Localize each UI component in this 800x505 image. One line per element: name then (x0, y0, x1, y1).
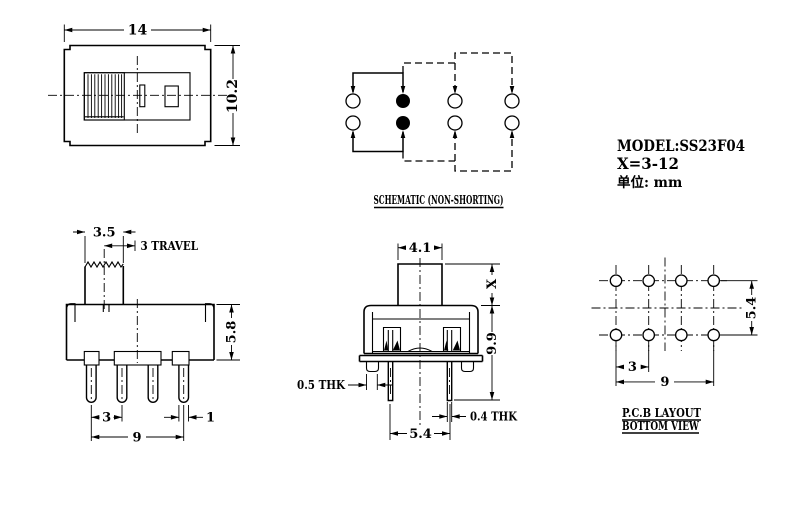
schematic-arrows (351, 86, 515, 138)
pcb-hole-1a (610, 275, 621, 286)
pin-tab-4 (172, 352, 189, 366)
dim-58-label: 5.8 (225, 321, 240, 344)
front-pin-centerlines (91, 368, 183, 400)
side-hook-left (367, 362, 379, 372)
pcb-hole-2a (643, 275, 654, 286)
x-range: X=3-12 (617, 154, 679, 173)
dim-05thk-arrows (359, 383, 386, 388)
dim-span-label: 9 (132, 430, 141, 445)
dim-05thk-label: 0.5 THK (297, 377, 346, 392)
pcb-hole-3a (676, 275, 687, 286)
contact-1b (346, 116, 360, 130)
pcb-hole-4a (708, 275, 719, 286)
schematic-label: SCHEMATIC (NON-SHORTING) (374, 193, 504, 207)
title-block: MODEL:SS23F04 X=3-12 单位: mm (617, 136, 745, 191)
schematic-solid-links (353, 73, 403, 152)
pcb-hole-1b (610, 329, 621, 340)
slot-window (165, 86, 178, 107)
front-view: 3.5 3 TRAVEL 5.8 3 1 (67, 226, 241, 446)
contact-2a-common (396, 94, 410, 108)
pcb-title-line2: BOTTOM VIEW (622, 418, 700, 433)
pcb-dim-54-label: 5.4 (745, 297, 760, 320)
dim-05thk-ext (348, 374, 392, 390)
pcb-hole-3b (676, 329, 687, 340)
mount-ear-left (67, 304, 76, 322)
technical-drawing-page: 14 10.2 SCHEMATIC (NON-SHORTING) MODEL:S… (0, 0, 800, 500)
dim-14-label: 14 (128, 23, 148, 39)
model-number: MODEL:SS23F04 (617, 136, 745, 155)
side-flange (360, 354, 483, 362)
dim-pinw-label: 1 (206, 411, 215, 426)
pin-tab-1 (84, 352, 99, 366)
top-view: 14 10.2 (48, 23, 241, 146)
contact-3a (448, 94, 462, 108)
pcb-hole-2b (643, 329, 654, 340)
switch-drawing-svg: 14 10.2 SCHEMATIC (NON-SHORTING) MODEL:S… (0, 0, 800, 500)
knob-stem-tab (140, 85, 145, 107)
schematic-dashed-links (403, 53, 512, 171)
dim-99-label: 9.9 (485, 332, 500, 355)
unit-note: 单位: mm (617, 174, 682, 191)
contact-4b (505, 116, 519, 130)
dim-04thk-arrows (439, 414, 459, 419)
mount-ear-right (206, 304, 215, 322)
contact-1a (346, 94, 360, 108)
pcb-dim-3-label: 3 (628, 360, 637, 375)
dim-102-label: 10.2 (225, 79, 241, 113)
contact-3b (448, 116, 462, 130)
dim-x-label: X (485, 278, 500, 289)
dim-04thk-label: 0.4 THK (470, 409, 518, 424)
contact-4a (505, 94, 519, 108)
knob-hatching (88, 74, 122, 118)
dim-35-label: 3.5 (93, 226, 116, 241)
contact-2b-common (396, 116, 410, 130)
terminal-left-wipers (384, 341, 400, 351)
dim-54side-label: 5.4 (409, 427, 432, 442)
side-view: 4.1 X 9.9 0.5 THK 0.4 THK (297, 241, 518, 442)
side-hook-right (462, 362, 474, 372)
dim-pitch-label: 3 (102, 411, 111, 426)
pcb-layout-view: 5.4 3 9 P.C.B LAYOUT BOTTOM VIEW (592, 258, 760, 434)
dim-travel-label: 3 TRAVEL (141, 238, 199, 253)
schematic-view: SCHEMATIC (NON-SHORTING) (346, 53, 519, 208)
dim-04thk-ext (432, 402, 466, 422)
pcb-hole-4b (708, 329, 719, 340)
dim-41-label: 4.1 (409, 241, 432, 256)
pcb-dim-9-label: 9 (660, 375, 669, 390)
